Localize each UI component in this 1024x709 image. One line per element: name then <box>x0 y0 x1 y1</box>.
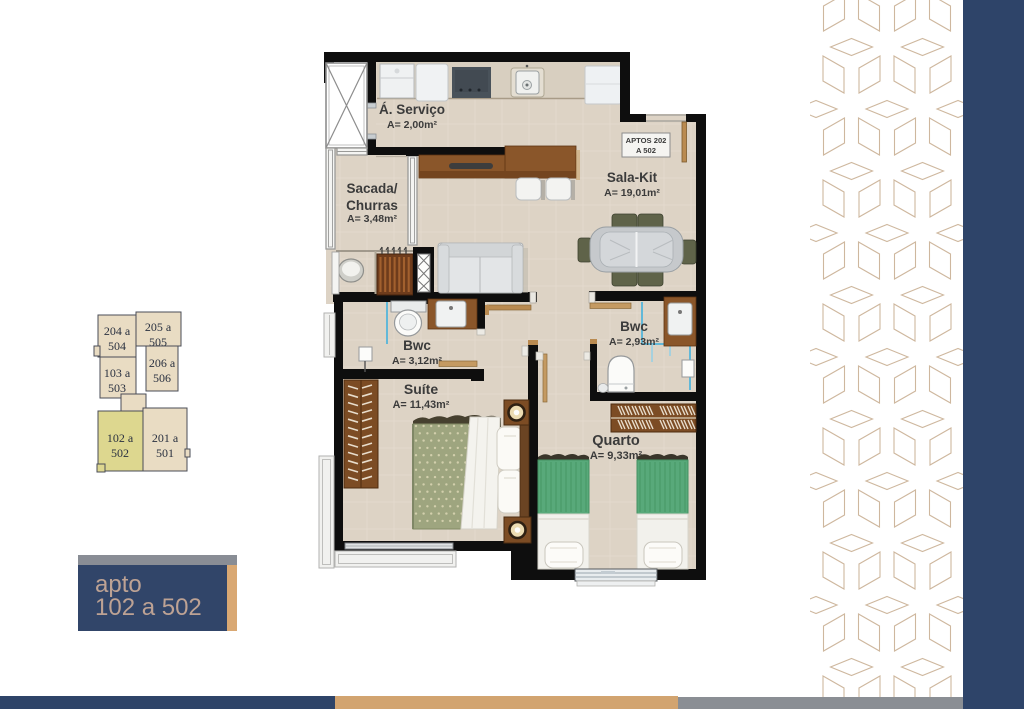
svg-text:504: 504 <box>108 339 126 353</box>
svg-text:A= 9,33m²: A= 9,33m² <box>590 450 643 462</box>
svg-text:A= 19,01m²: A= 19,01m² <box>604 187 660 199</box>
svg-text:502: 502 <box>111 446 129 460</box>
svg-text:501: 501 <box>156 446 174 460</box>
svg-text:Churras: Churras <box>346 198 398 213</box>
svg-text:A= 3,12m²: A= 3,12m² <box>392 355 442 367</box>
svg-text:Á. Serviço: Á. Serviço <box>379 102 445 117</box>
svg-text:A= 3,48m²: A= 3,48m² <box>347 213 397 225</box>
svg-text:102 a 502: 102 a 502 <box>95 594 202 621</box>
svg-text:Bwc: Bwc <box>620 319 648 334</box>
svg-text:205 a: 205 a <box>145 320 172 334</box>
svg-text:206 a: 206 a <box>149 356 176 370</box>
svg-text:Sala-Kit: Sala-Kit <box>607 170 658 185</box>
svg-text:Quarto: Quarto <box>592 433 640 449</box>
svg-text:505: 505 <box>149 335 167 349</box>
svg-text:A= 11,43m²: A= 11,43m² <box>393 399 450 411</box>
svg-text:102 a: 102 a <box>107 431 134 445</box>
svg-text:204 a: 204 a <box>104 324 131 338</box>
svg-text:Suíte: Suíte <box>404 381 438 397</box>
svg-text:APTOS 202: APTOS 202 <box>626 136 667 145</box>
svg-text:A= 2,93m²: A= 2,93m² <box>609 336 659 348</box>
svg-text:503: 503 <box>108 381 126 395</box>
svg-text:Bwc: Bwc <box>403 338 431 353</box>
svg-text:103 a: 103 a <box>104 366 131 380</box>
svg-text:A 502: A 502 <box>636 146 656 155</box>
svg-text:506: 506 <box>153 371 171 385</box>
svg-text:A= 2,00m²: A= 2,00m² <box>387 119 437 131</box>
svg-text:Sacada/: Sacada/ <box>346 181 397 196</box>
svg-text:201 a: 201 a <box>152 431 179 445</box>
